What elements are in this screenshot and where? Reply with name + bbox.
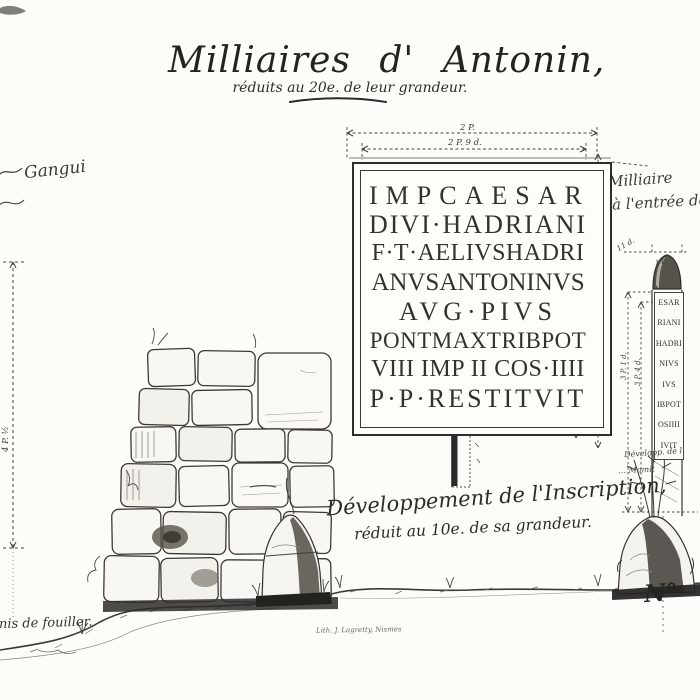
milestone-line: NIVS bbox=[655, 354, 683, 374]
lithographer-imprint: Lith. J. Lagretty, Nismes bbox=[316, 625, 402, 634]
milestone-line: IBPOT bbox=[655, 395, 683, 415]
plate-subtitle: réduits au 20e. de leur grandeur. bbox=[200, 80, 500, 96]
inscription-block: IMPCAESAR DIVI·HADRIANI F·T·AELIVSHADRI … bbox=[369, 181, 587, 413]
left-script-squiggle bbox=[0, 168, 24, 206]
dim-tablet-width-inner: 2 P. 9 d. bbox=[448, 138, 482, 148]
dim-left-column: 4 P. ½ bbox=[1, 426, 11, 452]
plate-title: Milliaires d' Antonin, bbox=[168, 40, 548, 81]
milestone-line: OSIIII bbox=[655, 415, 683, 435]
dim-milestone-height-2: 3 P. 4 d. bbox=[634, 358, 642, 386]
inscription-tablet: IMPCAESAR DIVI·HADRIANI F·T·AELIVSHADRI … bbox=[352, 162, 612, 436]
corner-mark bbox=[0, 6, 26, 15]
inscription-line: P·P·RESTITVIT bbox=[369, 384, 587, 413]
dim-milestone-height-1: 3 P. 1 d. bbox=[620, 352, 628, 380]
inscription-line: DIVI·HADRIANI bbox=[369, 210, 587, 239]
inscription-line: IMPCAESAR bbox=[369, 181, 587, 210]
lithograph-plate: Milliaires d' Antonin, réduits au 20e. d… bbox=[0, 0, 700, 700]
inscription-line: VIII IMP II COS·IIII bbox=[369, 355, 587, 384]
inscription-line: F·T·AELIVSHADRI bbox=[369, 239, 587, 268]
numero-label: N° bbox=[643, 577, 679, 608]
milestone-line: IVS bbox=[655, 375, 683, 395]
inscription-line: PONTMAXTRIBPOT bbox=[369, 326, 587, 355]
milestone-line: HADRI bbox=[655, 334, 683, 354]
tablet-inner-frame: IMPCAESAR DIVI·HADRIANI F·T·AELIVSHADRI … bbox=[360, 170, 604, 428]
dim-tablet-width-outer: 2 P. bbox=[460, 123, 475, 133]
bottom-left-caption: …nis de fouiller. bbox=[0, 615, 93, 633]
inscription-line: AVG·PIVS bbox=[369, 297, 587, 326]
milestone-line: ESAR bbox=[655, 293, 683, 313]
milestone-line: RIANI bbox=[655, 313, 683, 333]
dim-milestone-cap: 1 P. bbox=[654, 257, 666, 266]
milestone-inscription-panel: ESAR RIANI HADRI NIVS IVS IBPOT OSIIII I… bbox=[654, 292, 684, 460]
inscription-line: ANVSANTONINVS bbox=[369, 268, 587, 297]
subtitle-flourish bbox=[290, 98, 386, 102]
